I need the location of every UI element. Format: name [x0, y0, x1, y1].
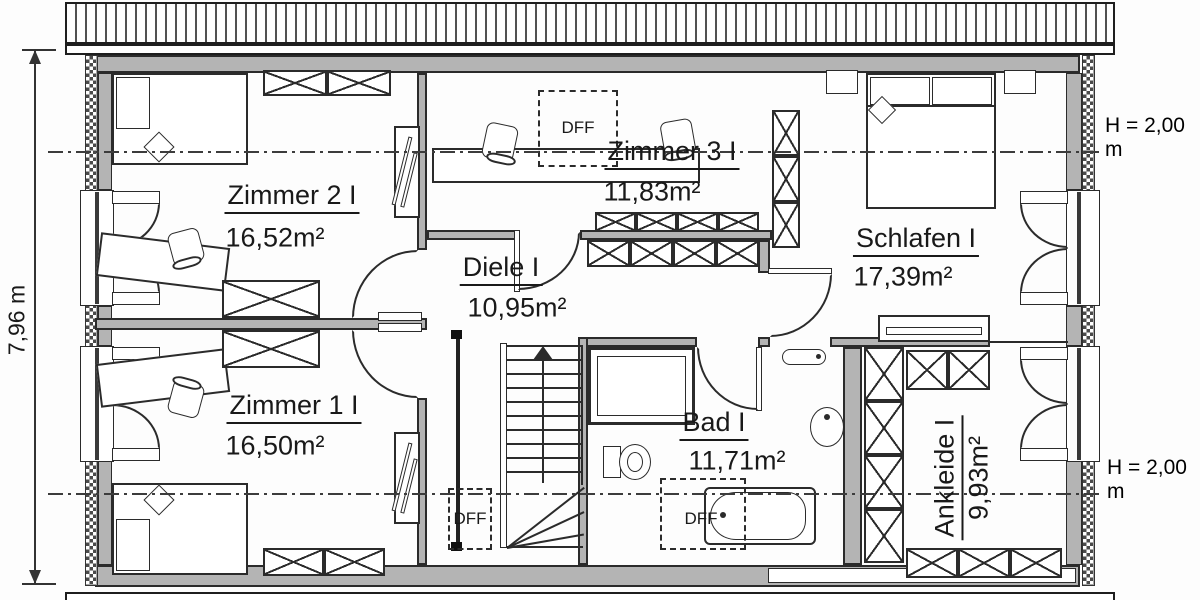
wardrobe-diele-d: [716, 240, 759, 267]
room-label-ankleide: Ankleide I: [930, 416, 964, 541]
wardrobe-diele-b: [630, 240, 673, 267]
room-area-bad: 11,71m²: [688, 446, 785, 477]
window-schlafen-swing-top: [1020, 203, 1068, 248]
window-zimmer1-leaf-bottom: [112, 448, 160, 461]
dimension-line: [34, 50, 36, 584]
nightstand-schlafen-left: [826, 70, 858, 94]
room-area-schlafen: 17,39m²: [853, 262, 952, 293]
shelf-diele-b: [378, 323, 422, 332]
wall-east-insulation: [1082, 55, 1095, 586]
wall-west-seg1: [98, 73, 112, 190]
window-ankleide-glazing: [1077, 348, 1081, 460]
sideboard-zimmer3-d: [718, 212, 759, 232]
bed-schlafen-pillow-right: [932, 77, 992, 105]
stair-stringer: [500, 343, 507, 548]
roof-ridge-band: [65, 2, 1115, 44]
dresser-zimmer1-mid: [222, 330, 320, 368]
dresser-zimmer1-b: [324, 548, 385, 576]
stair-direction-arrow: [533, 346, 553, 360]
wardrobe-zimmer3-schlafen-c: [772, 202, 800, 248]
window-schlafen-glazing: [1077, 192, 1081, 304]
dresser-zimmer2-mid: [222, 280, 320, 318]
shower-bad-inner: [597, 356, 686, 416]
room-area-zimmer1: 16,50m²: [225, 431, 324, 462]
room-label-zimmer2: Zimmer 2 I: [224, 180, 359, 214]
room-area-ankleide: 9,93m²: [964, 416, 995, 541]
room-area-zimmer2: 16,52m²: [225, 223, 324, 254]
door-zimmer2-swing: [352, 250, 418, 318]
bed-zimmer1-pillow: [116, 519, 150, 571]
sink-bad-drain: [824, 414, 830, 420]
wardrobe-ankleide-west-b: [864, 401, 904, 455]
skylight-label-bad: DFF: [684, 509, 717, 529]
overall-depth-label: 7,96 m: [4, 285, 31, 355]
dimension-arrow-top: [29, 50, 41, 64]
wardrobe-ankleide-west-d: [864, 509, 904, 563]
roof-eave-top: [65, 44, 1115, 55]
sideboard-zimmer3-b: [636, 212, 677, 232]
wardrobe-zimmer2-a: [263, 70, 327, 96]
wardrobe-ankleide-bottom-b: [958, 548, 1010, 578]
wall-north: [95, 55, 1080, 73]
room-label-zimmer3: Zimmer 3 I: [604, 136, 739, 170]
wardrobe-ankleide-bottom-a: [906, 548, 958, 578]
door-bad-swing: [697, 347, 758, 410]
wardrobe-diele-c: [673, 240, 716, 267]
wall-zimmer3-diele-west: [427, 230, 517, 240]
wardrobe-diele-a: [587, 240, 630, 267]
wall-bad-north: [583, 337, 697, 347]
height-label-top: H = 2,00 m: [1105, 114, 1200, 162]
sink-bad: [810, 407, 844, 447]
door-schlafen-swing: [770, 274, 832, 337]
window-ankleide-frame: [1066, 346, 1100, 462]
wall-west-seg3: [98, 458, 112, 565]
height-label-bottom: H = 2,00 m: [1107, 456, 1200, 504]
wardrobe-ankleide-west-a: [864, 347, 904, 401]
wall-east-seg1: [1066, 73, 1082, 190]
sideboard-zimmer3-a: [595, 212, 636, 232]
bed-zimmer2-pillow: [116, 77, 150, 129]
dresser-zimmer1-a: [263, 548, 324, 576]
window-schlafen-frame: [1066, 190, 1100, 306]
room-area-diele: 10,95m²: [467, 293, 566, 324]
nightstand-schlafen-right: [1004, 70, 1036, 94]
wardrobe-zimmer3-schlafen-a: [772, 110, 800, 156]
dimension-arrow-bottom: [29, 570, 41, 584]
room-label-schlafen: Schlafen I: [853, 223, 979, 257]
room-area-zimmer3: 11,83m²: [603, 177, 700, 208]
window-ankleide-leaf-bottom: [1020, 448, 1068, 461]
window-schlafen-swing-bottom: [1020, 248, 1068, 293]
door-zimmer1-swing: [352, 330, 418, 398]
wardrobe-zimmer3-schlafen-b: [772, 156, 800, 202]
window-ankleide-swing-bottom: [1020, 404, 1068, 449]
wardrobe-ankleide-top-b: [948, 350, 990, 390]
room-label-bad: Bad I: [679, 407, 748, 441]
stair-treads: [507, 345, 583, 485]
sideboard-schlafen-inner: [886, 327, 982, 335]
floor-plan: Zimmer 2 I 16,52m² Zimmer 3 I 11,83m² Sc…: [0, 0, 1200, 600]
stair-direction-line: [542, 358, 544, 483]
window-zimmer1-swing-bottom: [112, 404, 160, 449]
wall-east-seg2: [1066, 306, 1082, 346]
passage-schlafen-ankleide: [990, 341, 1068, 343]
stair-railing-post-top: [451, 330, 462, 339]
room-label-ankleide-group: Ankleide I 9,93m²: [930, 416, 995, 541]
radiator-bad-valve: [816, 354, 821, 359]
room-label-zimmer1: Zimmer 1 I: [226, 390, 361, 424]
height-line-top: [48, 151, 1102, 153]
wardrobe-ankleide-bottom-c: [1010, 548, 1062, 578]
wardrobe-ankleide-west-c: [864, 455, 904, 509]
room-label-diele: Diele I: [460, 252, 543, 286]
roof-eave-bottom: [65, 592, 1115, 600]
wardrobe-zimmer2-b: [327, 70, 391, 96]
wall-east-seg3: [1066, 458, 1082, 565]
wall-post-doors: [758, 337, 770, 347]
skylight-label-zimmer3: DFF: [561, 118, 594, 138]
window-zimmer2-leaf-bottom: [112, 292, 160, 305]
toilet-bowl-inner: [627, 452, 643, 472]
wardrobe-ankleide-top-a: [906, 350, 948, 390]
window-ankleide-swing-top: [1020, 359, 1068, 404]
window-schlafen-leaf-bottom: [1020, 292, 1068, 305]
wall-bad-ankleide: [843, 347, 862, 565]
shelf-diele-a: [378, 312, 422, 321]
skylight-label-stairs: DFF: [453, 509, 486, 529]
sideboard-zimmer3-c: [677, 212, 718, 232]
